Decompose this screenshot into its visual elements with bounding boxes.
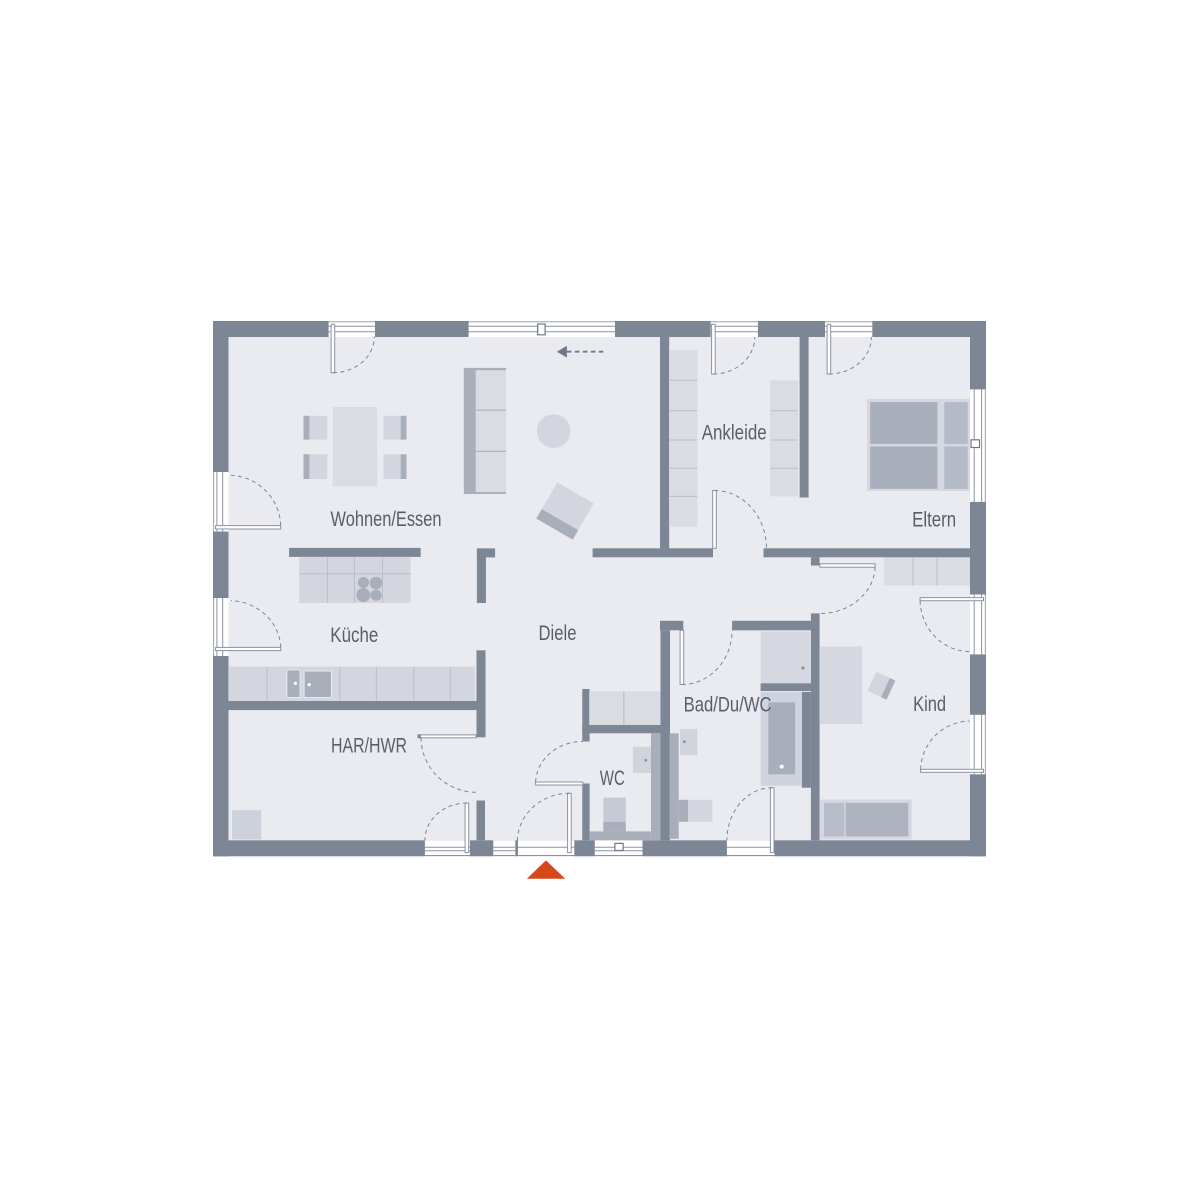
svg-text:Küche: Küche [330, 624, 378, 647]
svg-text:Bad/Du/WC: Bad/Du/WC [684, 694, 772, 717]
svg-text:Ankleide: Ankleide [702, 422, 767, 445]
svg-text:HAR/HWR: HAR/HWR [331, 735, 407, 758]
svg-text:Diele: Diele [539, 622, 577, 645]
svg-text:WC: WC [600, 767, 625, 790]
svg-text:Eltern: Eltern [912, 509, 956, 532]
svg-text:Kind: Kind [913, 693, 946, 716]
svg-text:Wohnen/Essen: Wohnen/Essen [331, 508, 442, 531]
